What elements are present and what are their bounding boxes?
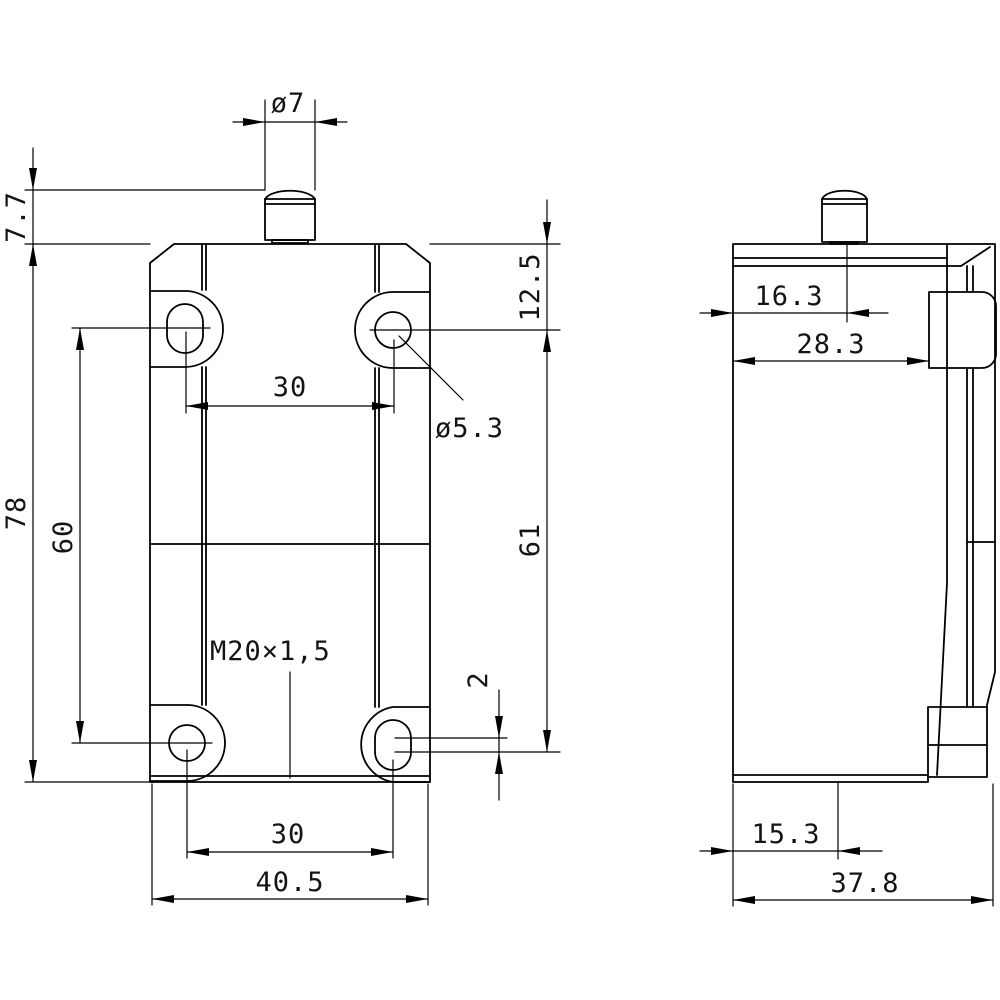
label-conduit-thread: M20×1,5 [210,636,331,778]
dim-label-body-height: 78 [1,496,32,531]
dim-head-depth: 28.3 [733,329,929,365]
dim-label-top-hole-pitch: 30 [273,372,308,403]
dim-label-plunger-offset: 16.3 [754,281,823,312]
drawing-canvas: ø7 7.7 78 60 12.5 61 30 ø5.3 M20 [0,0,1000,1000]
dim-label-head-depth: 28.3 [796,329,865,360]
side-top-band [733,247,990,266]
front-plunger [265,191,315,243]
dim-plunger-offset: 16.3 [700,244,888,322]
dim-plunger-dia: ø7 [233,88,347,190]
side-inner-lines [733,244,995,775]
dim-label-body-depth: 37.8 [830,868,899,899]
dim-label-conduit-offset: 15.3 [751,819,820,850]
side-body-outline [733,244,995,782]
side-view [733,191,996,782]
dim-label-mount-hole-dia: ø5.3 [435,413,504,444]
dim-label-body-width: 40.5 [255,867,324,898]
dim-hole-span-v: 61 [515,523,551,752]
dim-top-hole-pitch: 30 [186,332,394,413]
technical-drawing: ø7 7.7 78 60 12.5 61 30 ø5.3 M20 [0,0,1000,1000]
dim-body-height: 78 [1,496,37,782]
side-plunger [822,191,867,244]
dim-label-plunger-proj: 7.7 [1,191,32,243]
dim-label-slot-elongation: 2 [463,671,494,688]
dim-conduit-offset: 15.3 [700,782,882,859]
dim-label-hole-pitch-v: 60 [48,520,79,555]
dim-mount-hole-dia: ø5.3 [399,336,504,444]
dim-label-bottom-hole-pitch: 30 [271,819,306,850]
dim-label-plunger-dia: ø7 [271,88,306,119]
dim-label-top-edge-to-hole: 12.5 [515,252,546,321]
dim-slot-elongation: 2 [395,671,560,800]
dim-label-hole-span-v: 61 [515,523,546,558]
dim-top-edge-to-hole: 12.5 [370,200,560,752]
side-head-latch-tab [929,292,996,368]
dim-hole-pitch-v: 60 [48,328,212,743]
dim-label-conduit-thread: M20×1,5 [210,636,331,667]
